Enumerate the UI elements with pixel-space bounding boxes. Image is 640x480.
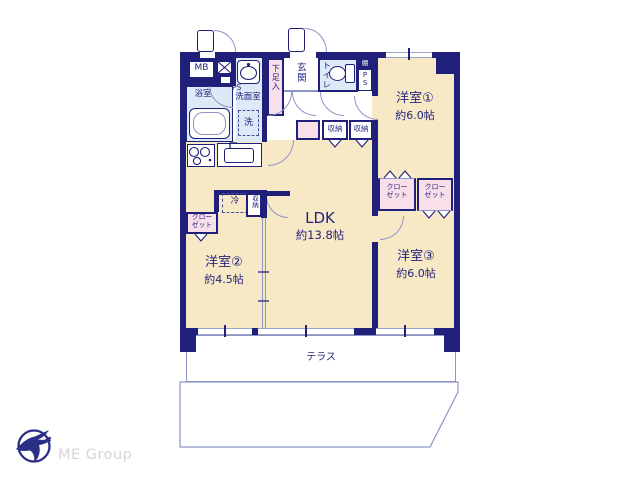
basin-oval: [241, 67, 257, 80]
company-name: ME Group: [58, 447, 168, 464]
lineart-overlay: [0, 0, 640, 480]
faucet-icon: [230, 143, 237, 148]
duct-x-icon: [217, 61, 232, 74]
floor-plan-canvas: MB 浴室 PS 洗面室 洗 下足入 玄関 トイレ 棚 PS 収納 収納 冷 収…: [0, 0, 640, 480]
company-logo-bird-icon: [16, 430, 52, 463]
basin-tap: [247, 63, 250, 66]
garden-outline: [180, 382, 458, 447]
